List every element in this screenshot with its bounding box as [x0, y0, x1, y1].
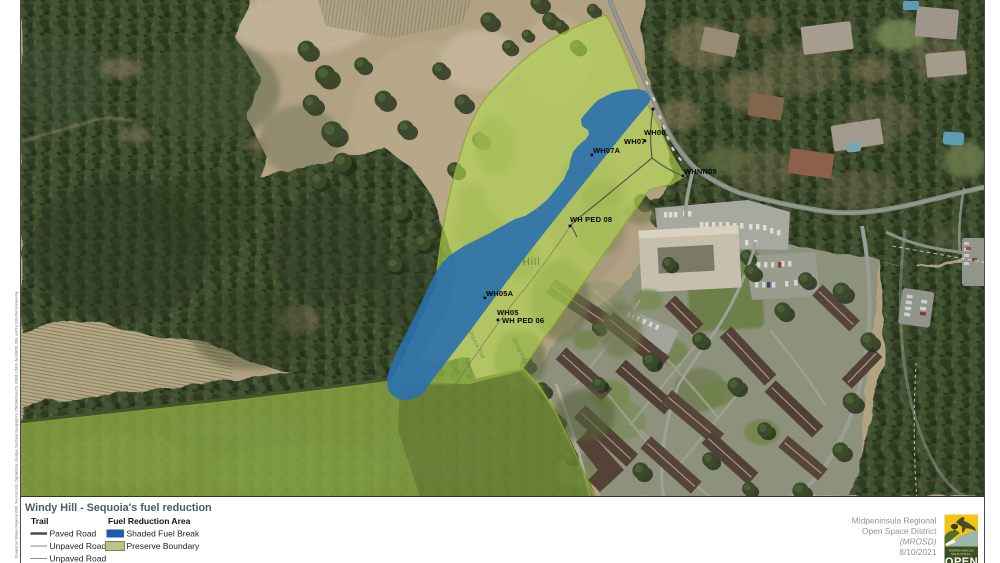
svg-text:Fuel Reduction Area: Fuel Reduction Area: [108, 516, 191, 526]
svg-text:(MROSD): (MROSD): [900, 537, 937, 547]
svg-text:8/10/2021: 8/10/2021: [899, 547, 937, 557]
svg-text:Unpaved Road: Unpaved Road: [50, 554, 107, 563]
svg-text:Unpaved Road: Unpaved Road: [50, 541, 107, 551]
svg-text:Open Space District: Open Space District: [862, 526, 937, 536]
svg-text:WHNN05: WHNN05: [684, 167, 717, 176]
svg-text:Shaded Fuel Break: Shaded Fuel Break: [127, 529, 201, 539]
svg-text:Created by: Midpen Regional OS: Created by: Midpen Regional OSD. Sources…: [15, 291, 19, 558]
svg-text:Windy Hill - Sequoia's fuel re: Windy Hill - Sequoia's fuel reduction: [25, 502, 212, 514]
svg-text:WH PED 06: WH PED 06: [502, 316, 544, 325]
svg-text:WH PED 08: WH PED 08: [570, 215, 612, 224]
svg-text:Midpeninsula Regional: Midpeninsula Regional: [852, 516, 937, 526]
svg-text:OPEN: OPEN: [945, 556, 978, 563]
svg-text:Trail: Trail: [31, 516, 48, 526]
svg-text:WH07A: WH07A: [593, 146, 621, 155]
svg-text:WH07: WH07: [624, 137, 646, 146]
svg-text:Preserve Boundary: Preserve Boundary: [127, 541, 201, 551]
svg-text:WH05A: WH05A: [486, 289, 514, 298]
svg-text:Paved Road: Paved Road: [50, 529, 97, 539]
svg-text:WH00: WH00: [644, 128, 666, 137]
